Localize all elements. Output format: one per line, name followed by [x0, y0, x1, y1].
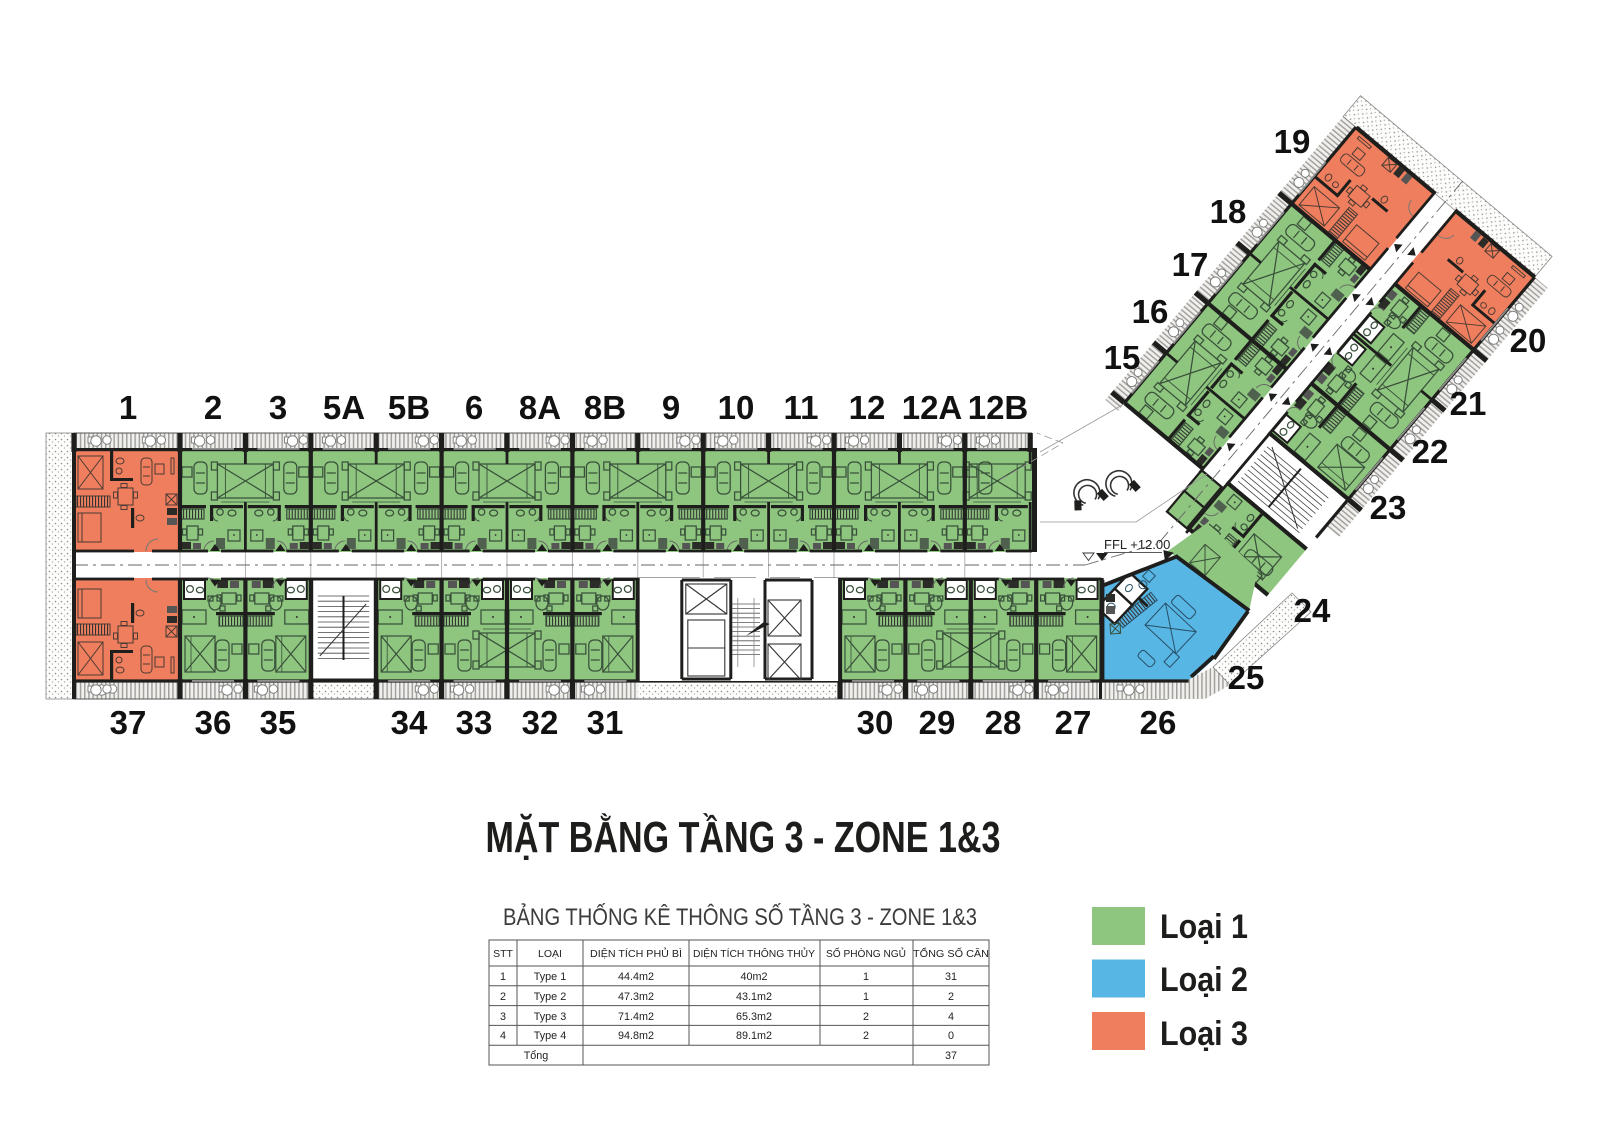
svg-text:2: 2: [948, 991, 954, 1003]
svg-text:33: 33: [456, 704, 493, 741]
svg-text:27: 27: [1055, 704, 1092, 741]
svg-text:Type 1: Type 1: [534, 971, 566, 983]
svg-text:35: 35: [260, 704, 297, 741]
svg-text:1: 1: [500, 971, 506, 983]
svg-text:Loại 1: Loại 1: [1160, 908, 1248, 946]
svg-text:BẢNG THỐNG KÊ THÔNG SỐ TẦNG 3: BẢNG THỐNG KÊ THÔNG SỐ TẦNG 3 - ZONE 1&3: [503, 902, 977, 931]
svg-text:Type 4: Type 4: [534, 1030, 566, 1042]
svg-text:2: 2: [863, 1011, 869, 1023]
svg-text:37: 37: [945, 1050, 957, 1062]
svg-text:31: 31: [945, 971, 957, 983]
svg-text:2: 2: [204, 389, 222, 426]
svg-text:23: 23: [1370, 489, 1407, 526]
svg-text:TỔNG SỐ CĂN: TỔNG SỐ CĂN: [913, 946, 989, 960]
svg-text:30: 30: [857, 704, 894, 741]
svg-text:2: 2: [863, 1030, 869, 1042]
svg-text:12A: 12A: [902, 389, 963, 426]
svg-text:3: 3: [500, 1011, 506, 1023]
svg-text:25: 25: [1228, 659, 1265, 696]
svg-text:DIỆN TÍCH PHỦ BÌ: DIỆN TÍCH PHỦ BÌ: [590, 947, 682, 960]
svg-text:Loại 2: Loại 2: [1160, 961, 1248, 999]
svg-text:19: 19: [1274, 123, 1311, 160]
svg-text:44.4m2: 44.4m2: [618, 971, 654, 983]
svg-text:22: 22: [1412, 433, 1449, 470]
svg-text:47.3m2: 47.3m2: [618, 991, 654, 1003]
svg-text:Tổng: Tổng: [524, 1050, 549, 1062]
svg-text:21: 21: [1450, 385, 1487, 422]
svg-text:4: 4: [948, 1011, 954, 1023]
svg-text:3: 3: [269, 389, 287, 426]
svg-text:1: 1: [863, 971, 869, 983]
svg-text:SỐ PHÒNG NGỦ: SỐ PHÒNG NGỦ: [826, 946, 906, 960]
svg-text:6: 6: [465, 389, 483, 426]
svg-text:29: 29: [919, 704, 956, 741]
svg-text:15: 15: [1104, 339, 1141, 376]
svg-text:STT: STT: [493, 948, 513, 960]
svg-text:DIỆN TÍCH THÔNG THỦY: DIỆN TÍCH THÔNG THỦY: [693, 947, 815, 960]
svg-text:65.3m2: 65.3m2: [736, 1011, 772, 1023]
svg-text:40m2: 40m2: [740, 971, 767, 983]
svg-text:17: 17: [1172, 246, 1209, 283]
svg-text:11: 11: [784, 389, 819, 426]
svg-text:Type 2: Type 2: [534, 991, 566, 1003]
svg-text:26: 26: [1140, 704, 1177, 741]
svg-text:36: 36: [195, 704, 232, 741]
svg-text:2: 2: [500, 991, 506, 1003]
svg-text:16: 16: [1132, 293, 1169, 330]
svg-text:34: 34: [391, 704, 428, 741]
svg-text:8B: 8B: [584, 389, 626, 426]
svg-text:1: 1: [119, 389, 137, 426]
svg-text:MẶT BẰNG TẦNG 3 - ZONE 1&3: MẶT BẰNG TẦNG 3 - ZONE 1&3: [486, 812, 1001, 862]
svg-text:12: 12: [849, 389, 886, 426]
svg-text:89.1m2: 89.1m2: [736, 1030, 772, 1042]
svg-text:4: 4: [500, 1030, 506, 1042]
svg-text:20: 20: [1510, 322, 1547, 359]
svg-text:5A: 5A: [323, 389, 365, 426]
svg-text:37: 37: [110, 704, 147, 741]
svg-text:12B: 12B: [968, 389, 1029, 426]
svg-text:9: 9: [662, 389, 680, 426]
svg-text:32: 32: [522, 704, 559, 741]
svg-text:Loại 3: Loại 3: [1160, 1015, 1248, 1053]
svg-text:94.8m2: 94.8m2: [618, 1030, 654, 1042]
svg-text:31: 31: [587, 704, 624, 741]
svg-text:1: 1: [863, 991, 869, 1003]
svg-text:24: 24: [1294, 592, 1331, 629]
svg-text:LOẠI: LOẠI: [538, 948, 562, 960]
svg-text:28: 28: [985, 704, 1022, 741]
svg-text:18: 18: [1210, 193, 1247, 230]
svg-text:43.1m2: 43.1m2: [736, 991, 772, 1003]
svg-text:5B: 5B: [388, 389, 430, 426]
svg-text:Type 3: Type 3: [534, 1011, 566, 1023]
svg-text:0: 0: [948, 1030, 954, 1042]
svg-text:8A: 8A: [519, 389, 561, 426]
svg-text:71.4m2: 71.4m2: [618, 1011, 654, 1023]
svg-text:10: 10: [718, 389, 755, 426]
